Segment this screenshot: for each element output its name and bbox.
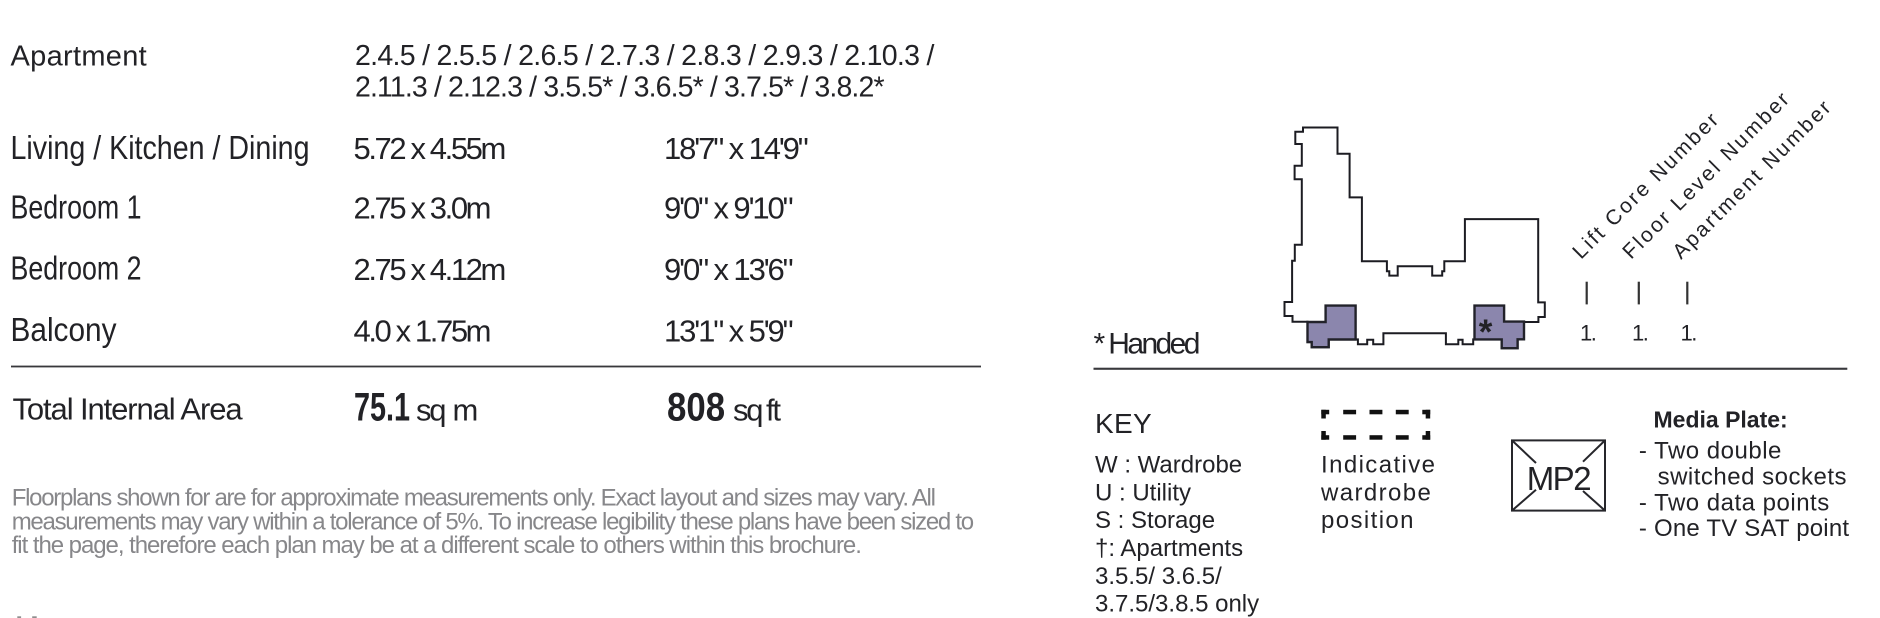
svg-text:1.: 1. [1681, 321, 1697, 346]
svg-text:switched sockets: switched sockets [1658, 464, 1847, 491]
svg-text:9'0" x 9'10": 9'0" x 9'10" [664, 191, 793, 226]
svg-text:Apartment: Apartment [11, 40, 148, 72]
svg-text:2.11.3 / 2.12.3 / 3.5.5* / 3.6: 2.11.3 / 2.12.3 / 3.5.5* / 3.6.5* / 3.7.… [355, 72, 884, 104]
svg-text:3.7.5/3.8.5 only: 3.7.5/3.8.5 only [1095, 591, 1259, 618]
svg-text:2.75 x 4.12m: 2.75 x 4.12m [354, 252, 505, 287]
svg-text:Living / Kitchen / Dining: Living / Kitchen / Dining [11, 129, 310, 166]
svg-text:KEY: KEY [1095, 408, 1152, 439]
svg-text:Indicative: Indicative [1321, 452, 1436, 479]
svg-text:- Two double: - Two double [1639, 438, 1782, 465]
svg-text:Total Internal Area: Total Internal Area [13, 392, 244, 427]
svg-text:Media Plate:: Media Plate: [1654, 407, 1788, 433]
svg-text:Floorplans shown for are for a: Floorplans shown for are for approximate… [12, 485, 935, 512]
svg-text:S : Storage: S : Storage [1095, 507, 1215, 534]
svg-text:Bedroom 2: Bedroom 2 [11, 250, 142, 287]
svg-text:U : Utility: U : Utility [1095, 479, 1191, 506]
svg-text:* Handed: * Handed [1094, 328, 1199, 361]
svg-text:sq: sq [733, 392, 762, 427]
svg-text:5.72 x 4.55m: 5.72 x 4.55m [354, 131, 505, 166]
svg-text:W : Wardrobe: W : Wardrobe [1095, 452, 1242, 479]
svg-text:wardrobe: wardrobe [1320, 479, 1432, 506]
svg-text:18'7" x 14'9": 18'7" x 14'9" [664, 131, 808, 166]
svg-text:808: 808 [667, 384, 725, 429]
svg-text:75.1: 75.1 [354, 385, 410, 430]
svg-text:sq: sq [416, 392, 445, 427]
svg-text:position: position [1321, 507, 1415, 534]
svg-text:9'0" x 13'6": 9'0" x 13'6" [664, 252, 793, 287]
svg-text:2.4.5 / 2.5.5 / 2.6.5 / 2.7.3: 2.4.5 / 2.5.5 / 2.6.5 / 2.7.3 / 2.8.3 / … [355, 40, 935, 72]
svg-text:1.: 1. [1580, 321, 1596, 346]
svg-text:- Two data points: - Two data points [1639, 489, 1830, 516]
svg-text:1.: 1. [1632, 321, 1648, 346]
svg-text:13'1" x 5'9": 13'1" x 5'9" [664, 313, 793, 348]
svg-text:m: m [453, 392, 477, 427]
svg-text:ft: ft [766, 392, 781, 427]
svg-text:*: * [1479, 313, 1493, 352]
svg-text:Balcony: Balcony [11, 311, 117, 348]
svg-text:Bedroom 1: Bedroom 1 [11, 188, 142, 225]
svg-text:MP2: MP2 [1527, 460, 1591, 497]
svg-text:2.75 x 3.0m: 2.75 x 3.0m [354, 191, 490, 226]
svg-text:†: Apartments: †: Apartments [1095, 535, 1243, 562]
svg-text:- One TV SAT point: - One TV SAT point [1639, 515, 1849, 542]
svg-text:3.5.5/ 3.6.5/: 3.5.5/ 3.6.5/ [1095, 563, 1222, 590]
svg-text:fit the page, therefore each p: fit the page, therefore each plan may be… [12, 532, 861, 559]
svg-text:4.0 x 1.75m: 4.0 x 1.75m [354, 313, 490, 348]
